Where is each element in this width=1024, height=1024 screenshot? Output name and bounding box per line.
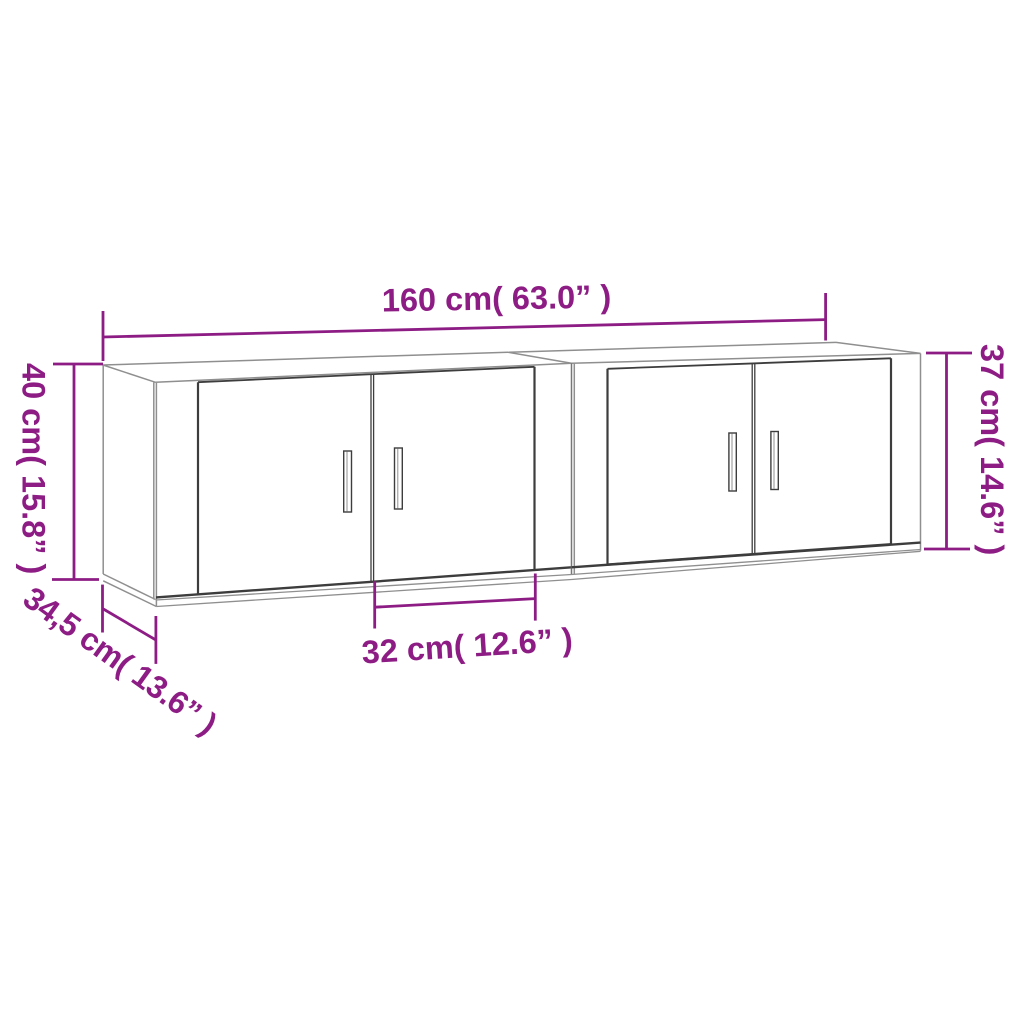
- svg-text:37 cm( 14.6” ): 37 cm( 14.6” ): [974, 344, 1010, 555]
- svg-text:160 cm( 63.0” ): 160 cm( 63.0” ): [381, 279, 611, 319]
- svg-text:40 cm( 15.8” ): 40 cm( 15.8” ): [16, 363, 52, 574]
